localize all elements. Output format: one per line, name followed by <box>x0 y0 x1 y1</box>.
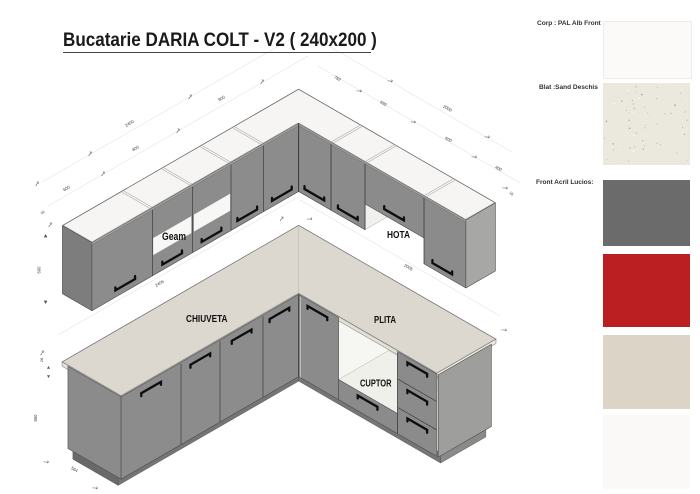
svg-text:2405: 2405 <box>154 278 165 287</box>
svg-text:2000: 2000 <box>442 104 453 113</box>
svg-text:600: 600 <box>444 135 453 143</box>
svg-text:800: 800 <box>131 144 140 152</box>
svg-text:600: 600 <box>36 266 41 274</box>
svg-text:2400: 2400 <box>124 118 135 127</box>
svg-text:564: 564 <box>70 465 79 473</box>
svg-text:CHIUVETA: CHIUVETA <box>186 314 228 325</box>
svg-text:PLITA: PLITA <box>374 315 396 326</box>
svg-text:400: 400 <box>494 164 503 172</box>
svg-text:850: 850 <box>33 414 38 422</box>
svg-text:28: 28 <box>40 358 44 362</box>
svg-text:HOTA: HOTA <box>387 230 410 241</box>
svg-text:16: 16 <box>508 191 514 197</box>
svg-text:900: 900 <box>217 94 226 102</box>
svg-text:600: 600 <box>62 184 71 192</box>
svg-text:782: 782 <box>333 74 342 82</box>
svg-text:692: 692 <box>379 99 388 107</box>
svg-text:Geam: Geam <box>162 231 186 243</box>
svg-text:2005: 2005 <box>403 263 414 272</box>
svg-text:CUPTOR: CUPTOR <box>360 379 392 390</box>
svg-text:16: 16 <box>40 210 46 216</box>
